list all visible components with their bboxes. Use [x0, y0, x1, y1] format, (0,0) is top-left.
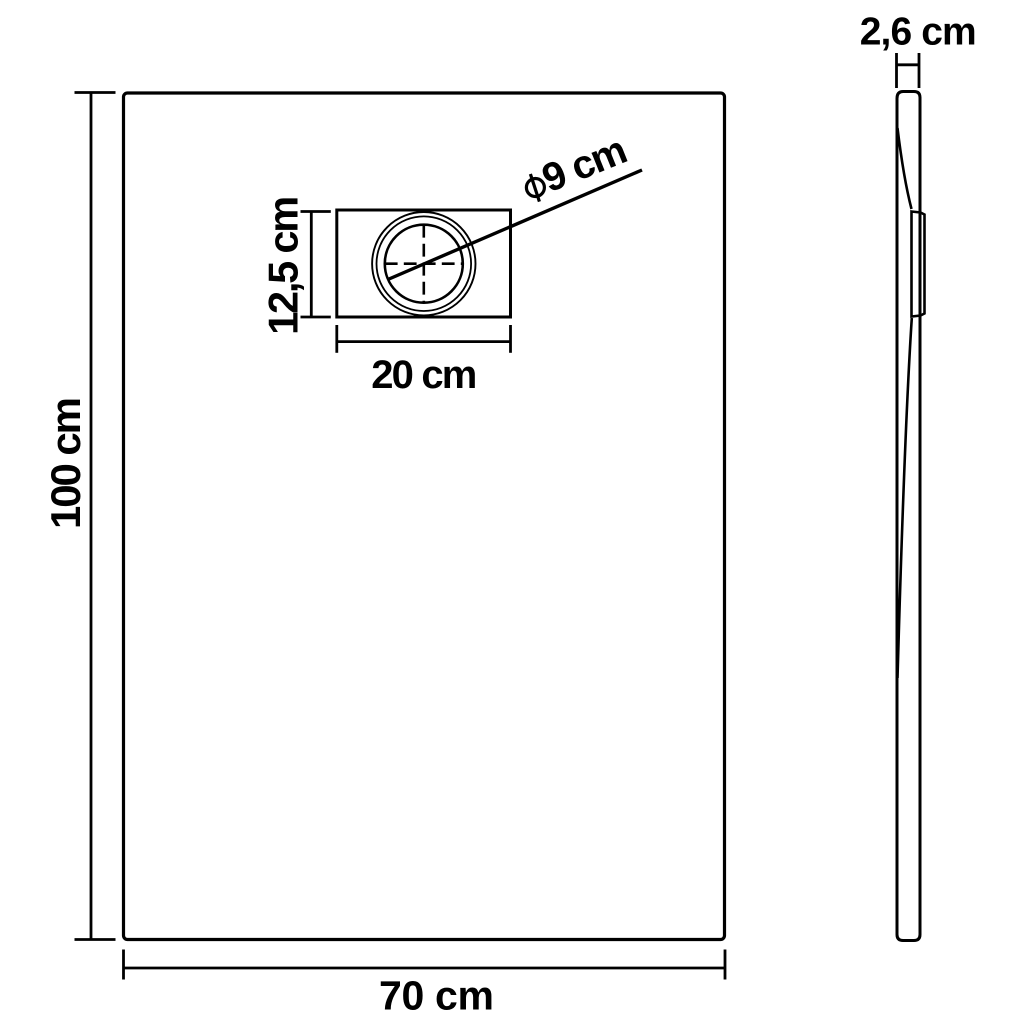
svg-text:100 cm: 100 cm: [42, 397, 89, 529]
svg-text:12,5 cm: 12,5 cm: [260, 196, 307, 335]
svg-text:20 cm: 20 cm: [371, 353, 477, 397]
svg-text:2,6 cm: 2,6 cm: [860, 10, 977, 53]
svg-text:70 cm: 70 cm: [379, 973, 494, 1019]
